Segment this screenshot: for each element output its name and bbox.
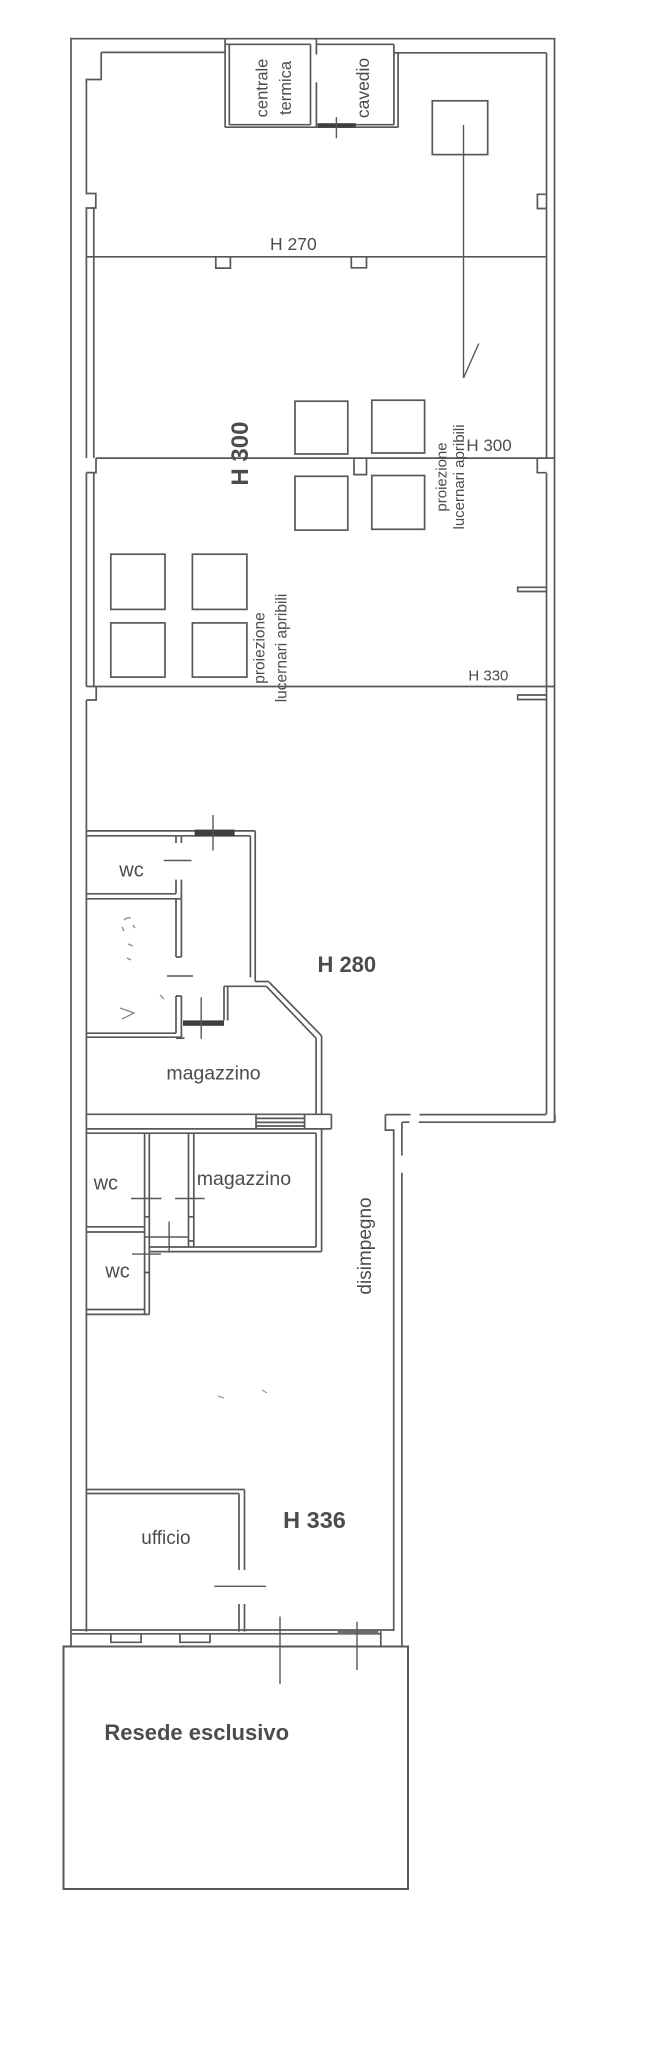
svg-text:Resede esclusivo: Resede esclusivo xyxy=(104,1720,289,1745)
svg-text:wc: wc xyxy=(118,860,143,882)
svg-text:ufficio: ufficio xyxy=(141,1528,190,1549)
svg-text:magazzino: magazzino xyxy=(166,1062,260,1084)
svg-text:H 336: H 336 xyxy=(283,1507,346,1533)
svg-text:H 330: H 330 xyxy=(468,668,508,685)
svg-text:cavedio: cavedio xyxy=(353,58,373,118)
svg-text:wc: wc xyxy=(93,1173,118,1195)
svg-text:disimpegno: disimpegno xyxy=(355,1197,376,1294)
svg-text:H 300: H 300 xyxy=(227,422,254,486)
svg-text:H 280: H 280 xyxy=(317,952,376,977)
svg-text:wc: wc xyxy=(104,1261,129,1283)
svg-text:magazzino: magazzino xyxy=(197,1168,291,1190)
svg-text:H 270: H 270 xyxy=(270,234,317,254)
svg-text:H 300: H 300 xyxy=(466,436,511,455)
